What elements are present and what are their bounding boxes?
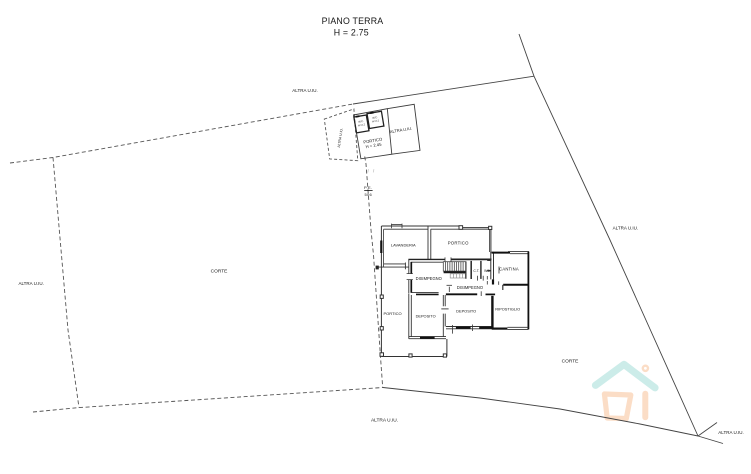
- svg-text:PORTICO: PORTICO: [448, 241, 469, 246]
- svg-text:ALTRA U.IU.: ALTRA U.IU.: [292, 88, 317, 93]
- svg-text:DEPOSITO: DEPOSITO: [456, 309, 476, 314]
- svg-text:CORTE: CORTE: [562, 359, 579, 365]
- svg-text:LAVANDERIA: LAVANDERIA: [391, 243, 416, 248]
- svg-text:H = 2.75: H = 2.75: [334, 28, 369, 38]
- svg-text:DISIMPEGNO: DISIMPEGNO: [416, 276, 442, 281]
- svg-text:PIANO TERRA: PIANO TERRA: [322, 16, 384, 26]
- svg-text:ALTRA U.IU.: ALTRA U.IU.: [371, 417, 398, 423]
- svg-text:ALTRA U.IU.: ALTRA U.IU.: [613, 225, 638, 230]
- svg-text:P.E.: P.E.: [364, 185, 373, 190]
- svg-text:C.T.: C.T.: [473, 269, 479, 273]
- svg-text:WC: WC: [484, 269, 490, 273]
- svg-text:CORTE: CORTE: [211, 269, 228, 275]
- svg-text:ALTRA U.IU.: ALTRA U.IU.: [718, 430, 743, 435]
- svg-text:506: 506: [365, 192, 373, 197]
- svg-text:CANTINA: CANTINA: [499, 266, 519, 271]
- svg-text:ALTRA U.IU.: ALTRA U.IU.: [18, 281, 43, 286]
- svg-text:DISIMPEGNO: DISIMPEGNO: [457, 285, 483, 290]
- svg-text:PORTICO: PORTICO: [384, 311, 402, 316]
- svg-text:RIPOSTIGLIO: RIPOSTIGLIO: [495, 307, 520, 312]
- svg-text:DEPOSITO: DEPOSITO: [416, 313, 436, 318]
